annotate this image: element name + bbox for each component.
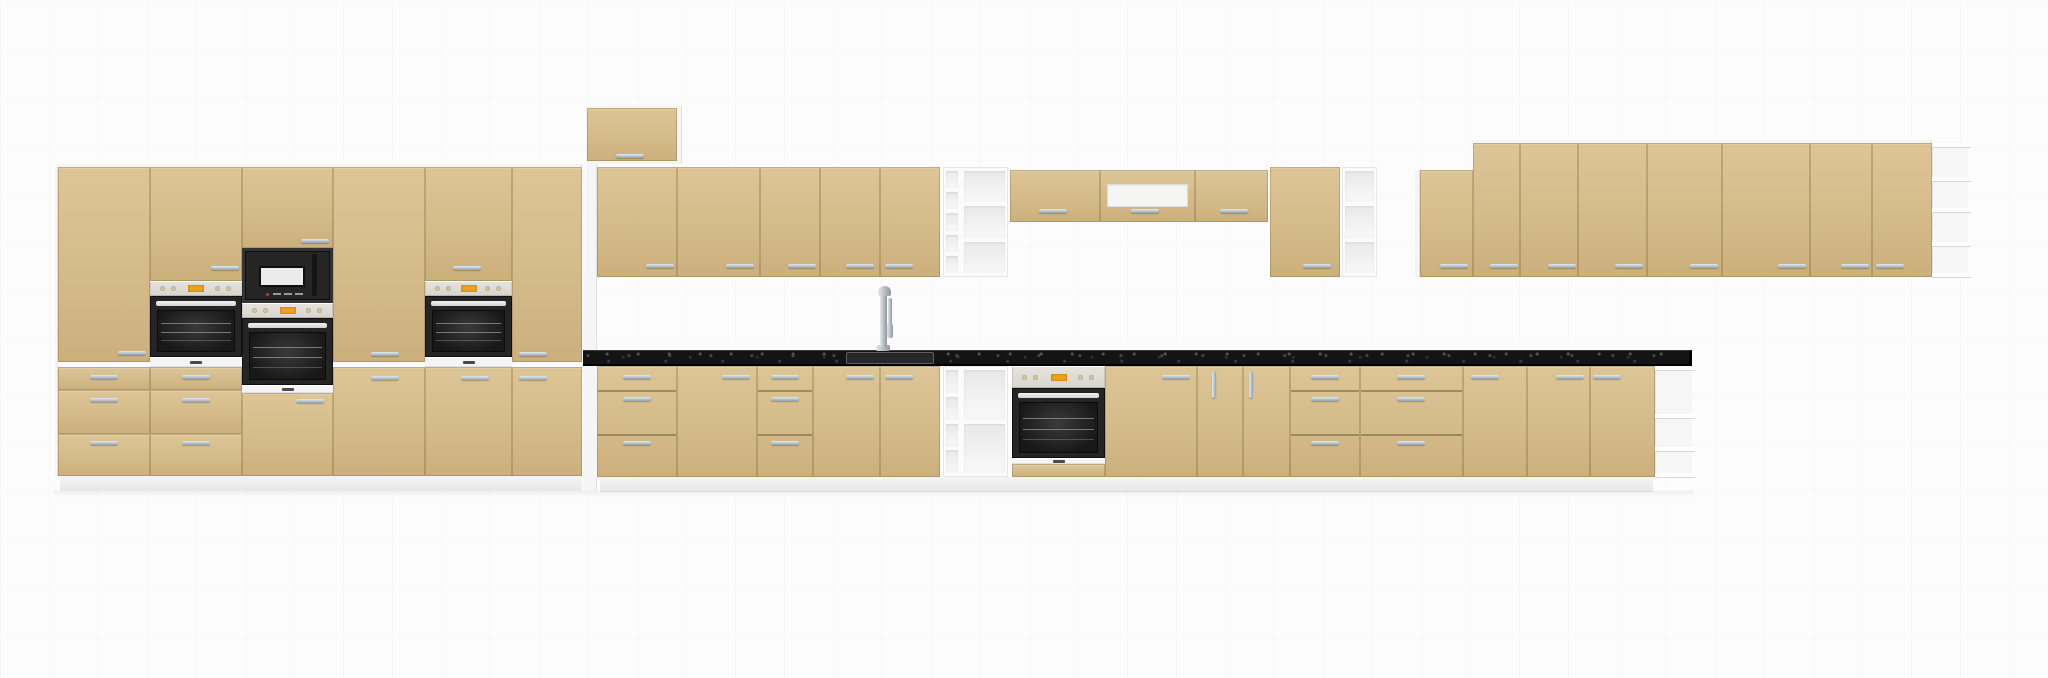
base-end-shelf-bottom — [1655, 473, 1695, 477]
base-drawer-unit-1-handle — [623, 397, 651, 401]
wall-left-post — [585, 164, 597, 277]
oven-tower-1-control-panel-display — [188, 285, 204, 292]
built-in-oven-base-oven — [1012, 388, 1105, 458]
oven-tower-2-oven-handle-bar — [431, 301, 506, 306]
base-shelf-unit-cell — [946, 424, 958, 447]
right-wall-cabinet-4 — [1578, 143, 1647, 277]
countertop — [583, 350, 1692, 366]
right-wall-cabinet-6-handle — [1778, 264, 1806, 268]
base-drawer-unit-1 — [597, 366, 677, 477]
oven-tower-1-oven-handle-bar — [156, 301, 236, 306]
oven-tower-1-oven-rack — [161, 332, 231, 333]
kitchen-faucet — [870, 286, 896, 352]
wall-cabinet-5-handle — [885, 264, 913, 268]
wall-cabinet-2-handle — [726, 264, 754, 268]
drawer-seam — [1361, 390, 1462, 392]
base-cabinet-2-handle — [1162, 375, 1190, 379]
microwave-oven-tower-microwave-buttons — [295, 293, 303, 295]
short-wall-cabinet-1 — [1010, 170, 1100, 222]
drawer-seam — [598, 390, 676, 392]
sink-base-cabinet-right — [880, 366, 940, 477]
microwave-oven-tower-handle — [296, 399, 324, 403]
right-wall-cabinet-1 — [1420, 170, 1473, 277]
wall-shelf-unit-cell — [964, 242, 1005, 273]
drawer-seam — [758, 434, 812, 436]
wall-shelf-unit — [943, 167, 1008, 277]
oven-tower-2-oven — [425, 296, 512, 357]
wall-shelf-unit-cell — [964, 206, 1005, 237]
base-drawer-unit-4-handle — [1397, 397, 1425, 401]
base-cabinet-6 — [1527, 366, 1590, 477]
oven-tower-1-control-panel-knob — [171, 286, 176, 291]
built-in-oven-base-oven-handle-bar — [1018, 393, 1099, 398]
base-shelf-unit — [943, 366, 1008, 477]
oven-tower-2-control-panel-knob — [435, 286, 440, 291]
built-in-oven-base-control-panel-knob — [1089, 375, 1094, 380]
oven-tower-2-oven-rack — [436, 340, 501, 341]
right-wall-cabinet-2-handle — [1490, 264, 1518, 268]
base-cabinet-6-handle — [1556, 375, 1584, 379]
microwave-oven-tower-oven-rack — [253, 347, 322, 348]
microwave-oven-tower-control-panel-knob — [252, 308, 257, 313]
oven-tower-2-oven-rack — [436, 323, 501, 324]
wall-shelf-unit-cell — [946, 256, 958, 273]
wall-cabinet-6 — [1270, 167, 1340, 277]
oven-tower-2-handle — [461, 376, 489, 380]
right-wall-cabinet-2 — [1473, 143, 1520, 277]
base-drawer-unit-2-handle — [771, 375, 799, 379]
microwave-oven-tower-microwave-buttons — [273, 293, 281, 295]
tall-cabinet-1-drawer — [58, 390, 150, 434]
tall-cabinet-3-door — [512, 367, 582, 476]
base-end-shelf — [1655, 366, 1692, 477]
right-wall-cabinet-5 — [1647, 143, 1722, 277]
microwave-oven-tower-microwave-handle — [312, 254, 317, 296]
oven-tower-2-trim — [425, 357, 512, 367]
right-wall-cabinet-8-handle — [1876, 264, 1904, 268]
tall-cabinet-1-handle — [90, 398, 118, 402]
oven-tower-2-control-panel — [425, 281, 512, 296]
base-shelf-unit-cell — [964, 370, 1005, 420]
built-in-oven-base-drawer — [1012, 464, 1105, 477]
built-in-oven-base-oven-window — [1019, 402, 1098, 453]
sink-base-cabinet-left-handle — [846, 375, 874, 379]
built-in-oven-base-control-panel-knob — [1022, 375, 1027, 380]
tall-run-plinth — [60, 476, 582, 491]
base-cabinet-5-handle — [1471, 375, 1499, 379]
oven-tower-2-control-panel-knob — [446, 286, 451, 291]
oven-tower-1-trim-grip — [190, 361, 202, 364]
oven-tower-1-handle — [182, 441, 210, 445]
oven-tower-2-oven-window — [432, 310, 505, 352]
sink-base-cabinet-right-handle — [885, 375, 913, 379]
base-cabinet-4-handle — [1249, 371, 1253, 398]
oven-tower-1-trim — [150, 357, 242, 367]
base-shelf-unit-cell — [946, 397, 958, 420]
base-cabinet-2 — [1105, 366, 1197, 477]
base-drawer-unit-3-handle — [1311, 441, 1339, 445]
oven-tower-1-control-panel-knob — [226, 286, 231, 291]
base-shelf-unit-cell — [964, 424, 1005, 474]
wall-cabinet-5 — [880, 167, 940, 277]
microwave-oven-tower-microwave-screen — [259, 266, 305, 287]
tall-cabinet-2-door — [333, 167, 425, 362]
microwave-oven-tower-door — [242, 167, 333, 248]
microwave-oven-tower-control-panel-knob — [263, 308, 268, 313]
oven-tower-1-oven-window — [157, 310, 235, 352]
oven-tower-2-door — [425, 167, 512, 281]
oven-tower-2-control-panel-knob — [485, 286, 490, 291]
wall-shelf-unit-cell — [946, 235, 958, 252]
tall-cabinet-2-handle — [371, 376, 399, 380]
tall-cabinet-3-handle — [519, 376, 547, 380]
drawer-seam — [758, 390, 812, 392]
microwave-oven-tower-oven-rack — [253, 367, 322, 368]
microwave-oven-tower-door — [242, 393, 333, 476]
base-cabinet-3 — [1197, 366, 1243, 477]
kitchen-cabinet-set-render — [0, 0, 2048, 678]
right-wall-cabinet-6 — [1722, 143, 1810, 277]
short-wall-cabinet-1-handle — [1039, 209, 1067, 213]
built-in-oven-base-oven-rack — [1023, 429, 1094, 430]
oven-tower-2-handle — [453, 266, 481, 270]
floor-shadow — [54, 491, 1694, 498]
base-cabinet-1-handle — [722, 375, 750, 379]
microwave-oven-tower-trim-grip — [282, 388, 294, 391]
microwave-oven-tower-microwave-buttons — [284, 293, 292, 295]
hood-cabinet-handle — [1131, 209, 1159, 213]
kitchen-faucet-riser — [880, 295, 887, 347]
right-wall-cabinet-3 — [1520, 143, 1578, 277]
base-cabinet-1 — [677, 366, 757, 477]
base-end-shelf-shelf — [1655, 447, 1695, 451]
wall-shelf-unit-cell — [946, 192, 958, 209]
right-corner-shelf-shelf — [1932, 177, 1971, 181]
base-drawer-unit-4-handle — [1397, 375, 1425, 379]
oven-tower-1-drawer — [150, 390, 242, 434]
base-end-shelf-shelf — [1655, 414, 1695, 418]
base-drawer-unit-1-handle — [623, 375, 651, 379]
built-in-oven-base-control-panel-display — [1051, 374, 1067, 381]
tall-cabinet-1-handle — [90, 441, 118, 445]
base-shelf-unit-cell — [946, 450, 958, 473]
oven-tower-1-oven — [150, 296, 242, 357]
microwave-oven-tower-microwave-button — [266, 293, 269, 296]
right-wall-cabinet-7 — [1810, 143, 1872, 277]
kitchen-faucet-hose — [888, 298, 892, 326]
sink-basin — [846, 352, 934, 364]
oven-tower-2-door — [425, 367, 512, 476]
oven-tower-2-oven-rack — [436, 332, 501, 333]
built-in-oven-base-trim-grip — [1053, 460, 1065, 463]
oven-tower-2-control-panel-knob — [496, 286, 501, 291]
tall-cabinet-1-handle — [118, 351, 146, 355]
drawer-seam — [598, 434, 676, 436]
oven-tower-1-door — [150, 167, 242, 281]
oven-tower-1-oven-rack — [161, 340, 231, 341]
oven-tower-1-control-panel-knob — [160, 286, 165, 291]
tall-cabinet-1-handle — [90, 375, 118, 379]
built-in-oven-base-oven-rack — [1023, 439, 1094, 440]
right-wall-cabinet-5-handle — [1690, 264, 1718, 268]
right-wall-cabinet-4-handle — [1615, 264, 1643, 268]
microwave-oven-tower-trim — [242, 385, 333, 393]
right-corner-shelf-bottom — [1932, 273, 1971, 277]
base-drawer-unit-4 — [1360, 366, 1463, 477]
wall-open-shelf-cell — [1345, 171, 1374, 202]
base-drawer-unit-3 — [1290, 366, 1360, 477]
microwave-oven-tower-oven-handle-bar — [248, 323, 327, 328]
base-drawer-unit-3-handle — [1311, 375, 1339, 379]
right-wall-cabinet-7-handle — [1841, 264, 1869, 268]
microwave-oven-tower-microwave — [242, 248, 333, 303]
tall-cabinet-3-door — [512, 167, 582, 362]
short-wall-cabinet-2 — [1195, 170, 1268, 222]
microwave-oven-tower-oven-window — [249, 332, 326, 380]
microwave-oven-tower-control-panel-display — [280, 307, 296, 314]
wall-shelf-unit-cell — [964, 171, 1005, 202]
built-in-oven-base-oven-rack — [1023, 418, 1094, 419]
oven-tower-1-handle — [182, 398, 210, 402]
base-cabinet-3-handle — [1212, 371, 1216, 398]
tall-cabinet-2-door — [333, 367, 425, 476]
base-drawer-unit-2-handle — [771, 397, 799, 401]
hood-cabinet — [1100, 170, 1195, 222]
wall-open-shelf — [1342, 167, 1377, 277]
wall-cabinet-4-handle — [846, 264, 874, 268]
oven-tower-1-handle — [211, 266, 239, 270]
microwave-oven-tower-handle — [301, 239, 329, 243]
hood-cabinet-glass-panel — [1107, 184, 1188, 207]
base-drawer-unit-2-handle — [771, 441, 799, 445]
right-corner-shelf-top — [1932, 143, 1971, 147]
built-in-oven-base-control-panel-knob — [1033, 375, 1038, 380]
kitchen-faucet-spray-head — [887, 324, 893, 338]
base-cabinet-7 — [1590, 366, 1655, 477]
oven-tower-1-oven-rack — [161, 323, 231, 324]
right-wall-cabinet-1-handle — [1440, 264, 1468, 268]
oven-tower-1-control-panel — [150, 281, 242, 296]
drawer-seam — [1291, 434, 1359, 436]
wall-cabinet-1-handle — [646, 264, 674, 268]
right-wall-cabinet-3-handle — [1548, 264, 1576, 268]
right-corner-shelf — [1932, 143, 1968, 277]
wall-cabinet-2 — [677, 167, 760, 277]
kitchen-faucet-spout — [878, 286, 891, 296]
wall-cabinet-6-handle — [1303, 264, 1331, 268]
oven-tower-1-handle — [182, 375, 210, 379]
raised-wall-cabinet-handle — [616, 154, 644, 158]
wall-cabinet-1 — [597, 167, 677, 277]
right-corner-shelf-shelf — [1932, 242, 1971, 246]
short-wall-cabinet-2-handle — [1220, 209, 1248, 213]
drawer-seam — [1291, 390, 1359, 392]
base-drawer-unit-2 — [757, 366, 813, 477]
wall-shelf-unit-cell — [946, 213, 958, 230]
built-in-oven-base-control-panel-knob — [1078, 375, 1083, 380]
base-shelf-unit-cell — [946, 370, 958, 393]
tall-cabinet-1-door — [58, 167, 150, 362]
base-drawer-unit-3-handle — [1311, 397, 1339, 401]
sink-base-cabinet-left — [813, 366, 880, 477]
base-run-plinth — [600, 477, 1653, 492]
wall-open-shelf-cell — [1345, 242, 1374, 273]
microwave-oven-tower-oven — [242, 318, 333, 385]
right-wall-cabinet-8 — [1872, 143, 1932, 277]
wall-cabinet-3 — [760, 167, 820, 277]
base-cabinet-5 — [1463, 366, 1527, 477]
oven-tower-2-control-panel-display — [461, 285, 477, 292]
wall-open-shelf-cell — [1345, 206, 1374, 237]
base-filler — [582, 366, 598, 477]
base-end-shelf-top — [1655, 366, 1695, 370]
microwave-oven-tower-control-panel-knob — [306, 308, 311, 313]
wall-cabinet-4 — [820, 167, 880, 277]
oven-tower-1-control-panel-knob — [215, 286, 220, 291]
base-cabinet-7-handle — [1593, 375, 1621, 379]
wall-cabinet-3-handle — [788, 264, 816, 268]
microwave-oven-tower-control-panel-knob — [317, 308, 322, 313]
oven-tower-2-trim-grip — [463, 361, 475, 364]
tall-cabinet-3-handle — [519, 352, 547, 356]
microwave-oven-tower-oven-rack — [253, 357, 322, 358]
base-drawer-unit-4-handle — [1397, 441, 1425, 445]
wall-shelf-unit-cell — [946, 171, 958, 188]
tall-cabinet-2-handle — [371, 352, 399, 356]
drawer-seam — [1361, 434, 1462, 436]
microwave-oven-tower-control-panel — [242, 303, 333, 318]
built-in-oven-base-control-panel — [1012, 366, 1105, 388]
right-corner-shelf-shelf — [1932, 208, 1971, 212]
base-drawer-unit-1-handle — [623, 441, 651, 445]
